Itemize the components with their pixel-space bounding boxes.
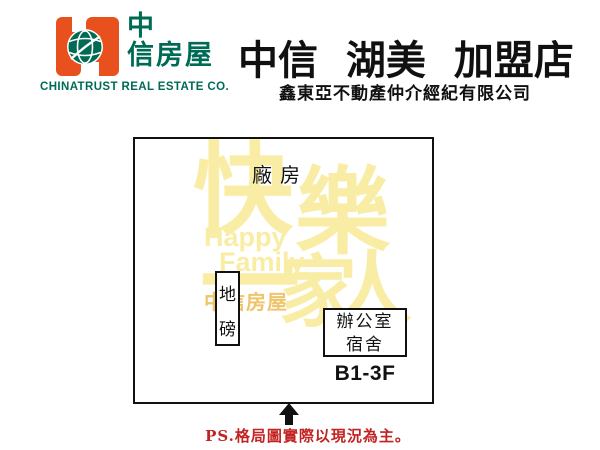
brand-name-line2: 信房屋 <box>127 41 237 70</box>
floors-label: B1-3F <box>330 362 400 386</box>
page-title: 中信 湖美 加盟店 <box>238 28 564 86</box>
office-label-line2: 宿舍 <box>325 334 405 357</box>
company-name-en: CHINATRUST REAL ESTATE CO. <box>40 81 250 93</box>
globe-icon <box>67 29 103 65</box>
office-label-line1: 辦公室 <box>325 311 405 334</box>
weighbridge-label-line2: 磅 <box>217 313 238 348</box>
factory-label: 廠房 <box>252 159 308 188</box>
office-dorm-box: 辦公室 宿舍 <box>323 308 407 357</box>
weighbridge-box: 地 磅 <box>215 271 240 346</box>
brand-name-line1: 中 <box>127 12 237 41</box>
brand-name: 中 信房屋 <box>127 12 237 70</box>
flyer-page: 中 信房屋 CHINATRUST REAL ESTATE CO. 中信 湖美 加… <box>0 0 600 450</box>
entrance-arrow-icon <box>277 403 301 426</box>
footer-note: PS.格局圖實際以現況為主。 <box>150 425 466 446</box>
weighbridge-label-line1: 地 <box>217 278 238 313</box>
page-subtitle: 鑫東亞不動產仲介經紀有限公司 <box>238 79 572 104</box>
chinatrust-logo-icon <box>55 16 121 78</box>
